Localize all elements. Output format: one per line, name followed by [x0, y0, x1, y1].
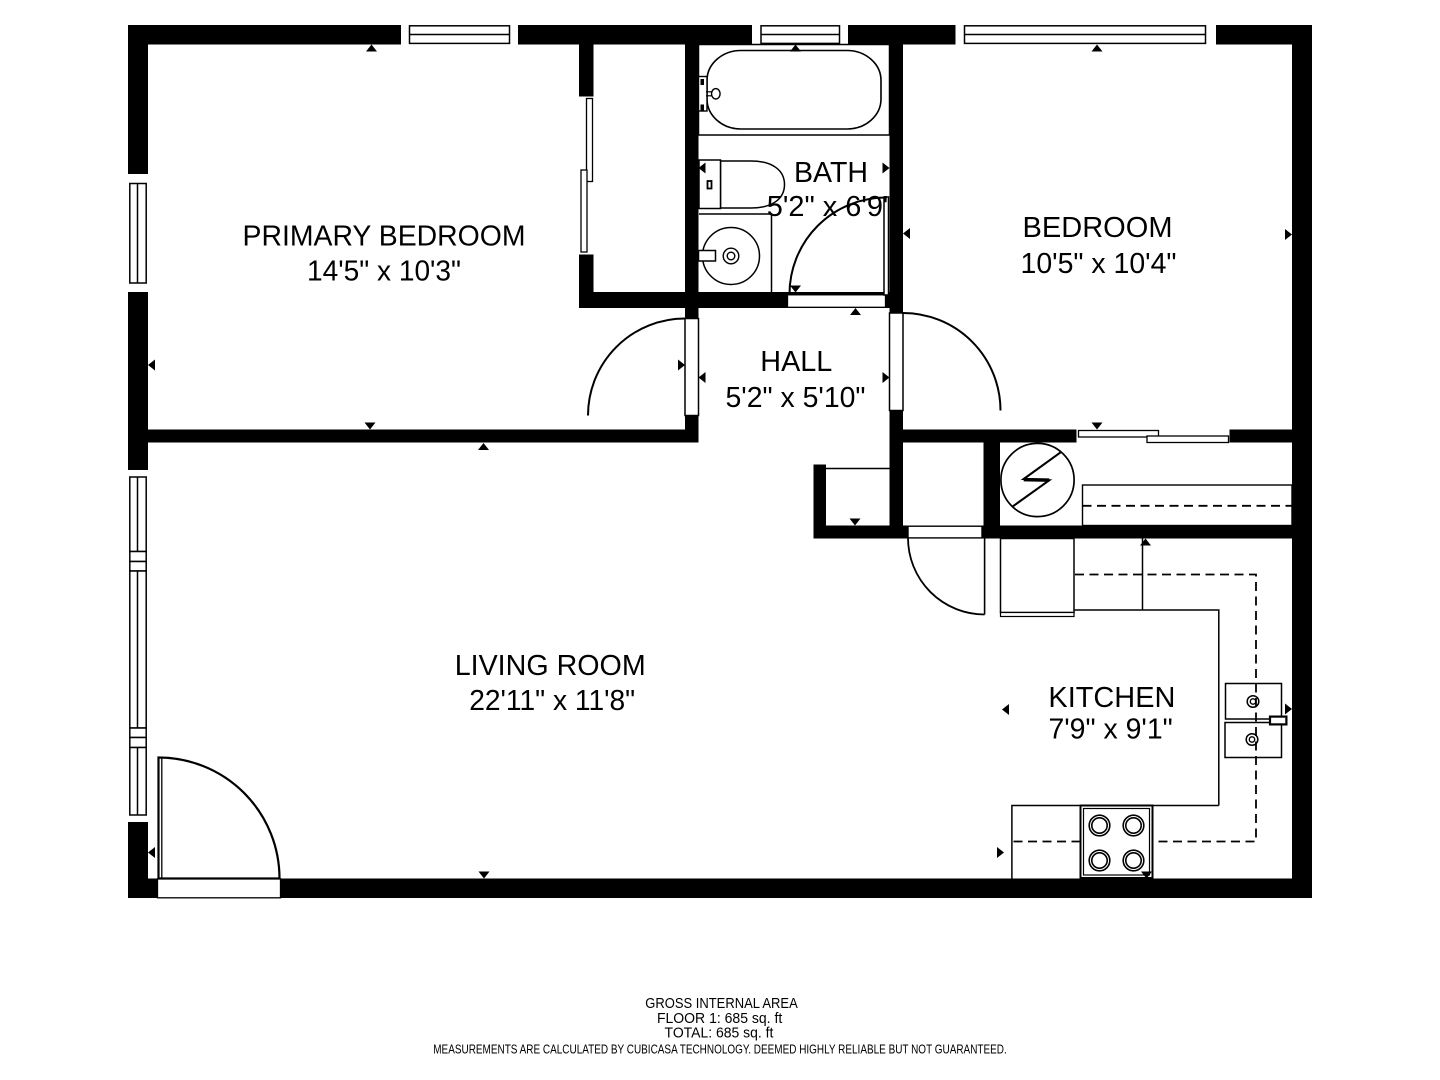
svg-text:14'5" x 10'3": 14'5" x 10'3" [307, 256, 461, 288]
svg-text:MEASUREMENTS ARE CALCULATED BY: MEASUREMENTS ARE CALCULATED BY CUBICASA … [433, 1043, 1007, 1057]
svg-text:10'5" x 10'4": 10'5" x 10'4" [1021, 248, 1177, 280]
svg-text:HALL: HALL [760, 346, 832, 378]
svg-text:GROSS INTERNAL AREA: GROSS INTERNAL AREA [645, 996, 798, 1012]
svg-text:5'2" x 5'10": 5'2" x 5'10" [726, 382, 866, 414]
svg-text:BATH: BATH [794, 157, 868, 189]
svg-text:BEDROOM: BEDROOM [1023, 212, 1173, 244]
svg-text:LIVING ROOM: LIVING ROOM [455, 650, 646, 682]
svg-text:22'11" x 11'8": 22'11" x 11'8" [469, 685, 635, 717]
svg-text:7'9" x 9'1": 7'9" x 9'1" [1048, 714, 1172, 746]
svg-text:5'2" x 6'9": 5'2" x 6'9" [767, 191, 894, 223]
svg-text:TOTAL: 685 sq. ft: TOTAL: 685 sq. ft [665, 1025, 774, 1041]
svg-text:PRIMARY BEDROOM: PRIMARY BEDROOM [243, 221, 526, 253]
svg-text:KITCHEN: KITCHEN [1048, 682, 1175, 714]
